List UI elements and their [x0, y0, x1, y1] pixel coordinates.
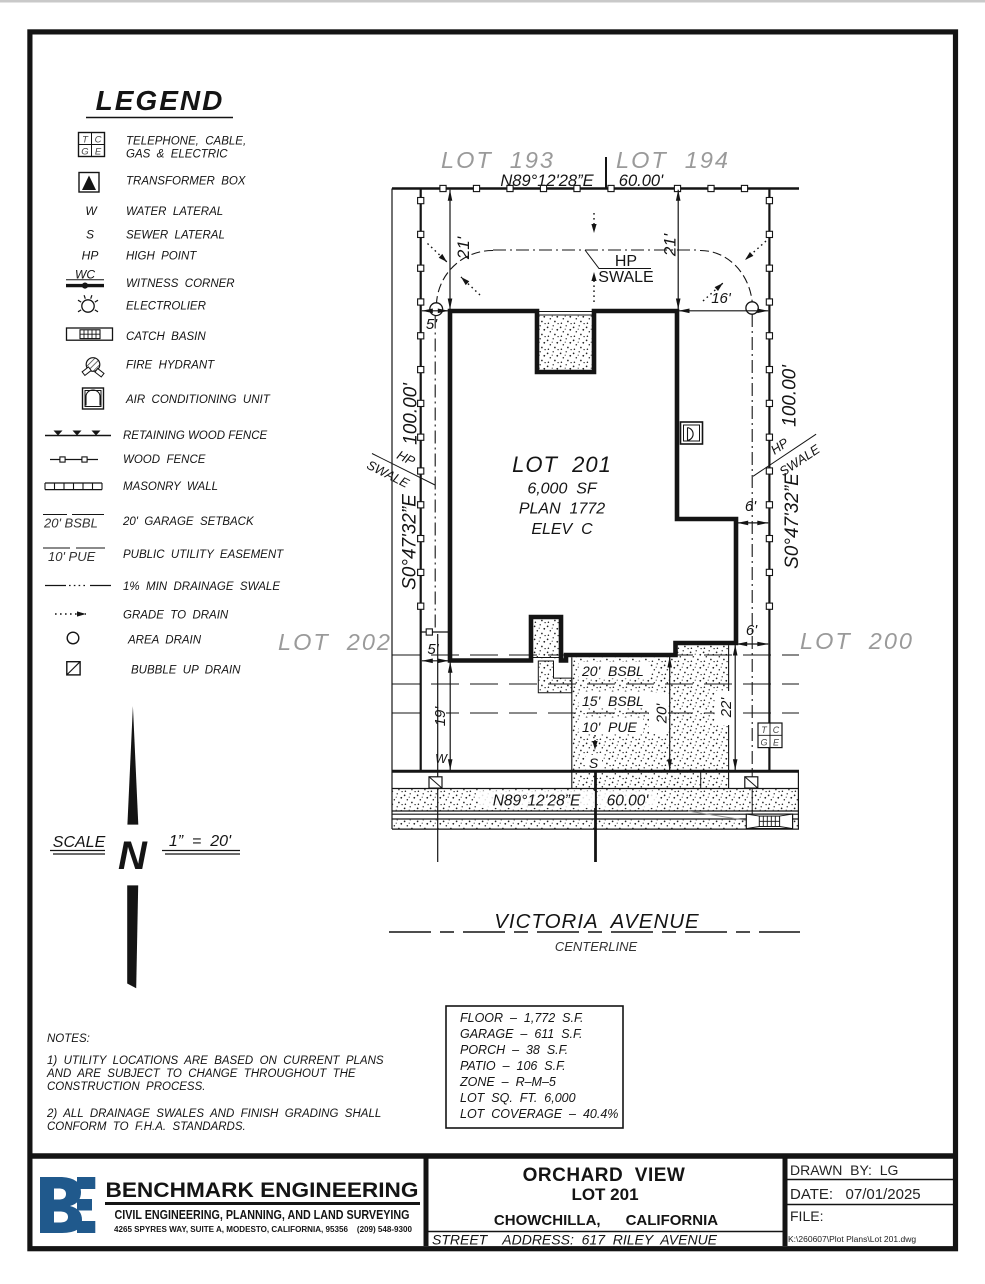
svg-text:LOT 200: LOT 200: [800, 628, 914, 654]
svg-text:CIVIL ENGINEERING, PLANNING, A: CIVIL ENGINEERING, PLANNING, AND LAND SU…: [115, 1208, 410, 1222]
svg-text:10' PUE: 10' PUE: [48, 549, 96, 564]
svg-text:CONSTRUCTION PROCESS.: CONSTRUCTION PROCESS.: [47, 1081, 205, 1093]
svg-text:SWALE: SWALE: [598, 269, 653, 286]
svg-text:6,000 SF: 6,000 SF: [527, 481, 598, 498]
svg-text:LOT SQ. FT. 6,000: LOT SQ. FT. 6,000: [460, 1091, 576, 1105]
svg-text:LOT 194: LOT 194: [616, 147, 730, 173]
svg-text:LOT 201: LOT 201: [571, 1185, 638, 1204]
svg-text:S: S: [589, 755, 599, 771]
svg-text:CONFORM TO F.H.A. STANDARDS: CONFORM TO F.H.A. STANDARDS.: [47, 1121, 246, 1133]
svg-text:HP: HP: [615, 253, 637, 270]
svg-text:2) ALL DRAINAGE SWALES AND: 2) ALL DRAINAGE SWALES AND FINISH GRADIN…: [46, 1108, 381, 1120]
svg-text:GAS & ELECTRIC: GAS & ELECTRIC: [126, 149, 228, 161]
svg-text:PORCH – 38 S.F.: PORCH – 38 S.F.: [460, 1043, 568, 1057]
svg-text:W: W: [435, 752, 448, 766]
svg-text:10' PUE: 10' PUE: [582, 719, 637, 735]
svg-text:WITNESS CORNER: WITNESS CORNER: [126, 278, 235, 290]
svg-text:100.00': 100.00': [401, 382, 422, 445]
svg-text:PUBLIC UTILITY EASEMENT: PUBLIC UTILITY EASEMENT: [123, 549, 284, 561]
svg-text:VICTORIA AVENUE: VICTORIA AVENUE: [494, 910, 700, 933]
svg-text:TRANSFORMER BOX: TRANSFORMER BOX: [126, 176, 247, 188]
svg-text:CATCH BASIN: CATCH BASIN: [126, 331, 206, 343]
svg-text:16': 16': [711, 290, 732, 307]
svg-text:HP: HP: [82, 249, 99, 263]
svg-text:NOTES:: NOTES:: [47, 1033, 90, 1045]
svg-text:GARAGE – 611 S.F.: GARAGE – 611 S.F.: [460, 1027, 583, 1041]
svg-text:4265 SPYRES WAY, SUITE A, MODE: 4265 SPYRES WAY, SUITE A, MODESTO, CALIF…: [114, 1224, 412, 1234]
svg-text:W: W: [85, 204, 98, 218]
svg-text:RETAINING WOOD FENCE: RETAINING WOOD FENCE: [123, 430, 268, 442]
svg-text:N: N: [118, 834, 148, 878]
svg-text:5': 5': [426, 316, 438, 333]
svg-text:ZONE – R–M–5: ZONE – R–M–5: [459, 1075, 556, 1089]
svg-text:G: G: [81, 147, 88, 158]
svg-text:LOT COVERAGE – 40.4%: LOT COVERAGE – 40.4%: [460, 1107, 618, 1121]
svg-text:STREET ADDRESS: 617 RILEY: STREET ADDRESS: 617 RILEY AVENUE: [432, 1232, 718, 1248]
svg-text:WOOD FENCE: WOOD FENCE: [123, 454, 206, 466]
svg-text:CENTERLINE: CENTERLINE: [555, 939, 638, 954]
svg-text:1) UTILITY LOCATIONS ARE B: 1) UTILITY LOCATIONS ARE BASED ON CURREN…: [47, 1055, 384, 1067]
svg-text:BENCHMARK ENGINEERING: BENCHMARK ENGINEERING: [106, 1178, 419, 1202]
svg-text:20' BSBL: 20' BSBL: [581, 663, 644, 679]
svg-text:S: S: [86, 228, 94, 242]
svg-text:G: G: [760, 738, 767, 748]
svg-text:1” = 20': 1” = 20': [169, 833, 232, 850]
svg-text:S0°47'32”E: S0°47'32”E: [782, 473, 803, 569]
svg-text:21': 21': [454, 236, 473, 260]
svg-text:BUBBLE UP DRAIN: BUBBLE UP DRAIN: [131, 665, 241, 677]
svg-text:20' BSBL: 20' BSBL: [43, 516, 98, 531]
svg-text:20': 20': [654, 703, 671, 725]
svg-text:21': 21': [661, 233, 680, 257]
svg-text:ORCHARD VIEW: ORCHARD VIEW: [523, 1165, 686, 1186]
svg-text:K:\260607\Plot Plans\Lot 201.d: K:\260607\Plot Plans\Lot 201.dwg: [788, 1234, 916, 1244]
svg-text:FILE:: FILE:: [790, 1208, 823, 1224]
svg-text:S0°47'32”E: S0°47'32”E: [400, 494, 421, 590]
svg-text:22': 22': [718, 697, 735, 719]
svg-text:SCALE: SCALE: [53, 834, 106, 851]
svg-text:DATE: 07/01/2025: DATE: 07/01/2025: [790, 1186, 921, 1203]
svg-text:60.00': 60.00': [607, 793, 650, 810]
svg-text:FLOOR – 1,772 S.F.: FLOOR – 1,772 S.F.: [460, 1011, 583, 1025]
svg-text:PATIO – 106 S.F.: PATIO – 106 S.F.: [460, 1059, 566, 1073]
svg-text:C: C: [95, 135, 102, 146]
svg-text:FIRE HYDRANT: FIRE HYDRANT: [126, 360, 215, 372]
svg-text:PLAN 1772: PLAN 1772: [519, 501, 605, 518]
svg-text:LOT 201: LOT 201: [512, 452, 612, 477]
svg-text:19': 19': [432, 706, 449, 727]
svg-text:SEWER LATERAL: SEWER LATERAL: [126, 230, 225, 242]
svg-text:E: E: [773, 738, 780, 748]
svg-text:ELEV C: ELEV C: [531, 521, 593, 538]
svg-text:MASONRY WALL: MASONRY WALL: [123, 481, 218, 493]
svg-text:C: C: [773, 725, 780, 735]
svg-text:HIGH POINT: HIGH POINT: [126, 251, 197, 263]
svg-text:15' BSBL: 15' BSBL: [582, 693, 644, 709]
svg-text:DRAWN BY: LG: DRAWN BY: LG: [790, 1162, 898, 1178]
svg-text:GRADE TO DRAIN: GRADE TO DRAIN: [123, 610, 229, 622]
svg-text:N89°12'28”E: N89°12'28”E: [493, 793, 581, 810]
svg-text:LOT 193: LOT 193: [441, 147, 555, 173]
svg-text:AND ARE SUBJECT TO CHANGE: AND ARE SUBJECT TO CHANGE THROUGHOUT THE: [46, 1068, 356, 1080]
svg-text:AREA DRAIN: AREA DRAIN: [127, 635, 202, 647]
svg-text:LEGEND: LEGEND: [96, 85, 225, 116]
svg-text:20' GARAGE SETBACK: 20' GARAGE SETBACK: [122, 516, 255, 528]
svg-text:WATER LATERAL: WATER LATERAL: [126, 206, 223, 218]
svg-text:TELEPHONE, CABLE,: TELEPHONE, CABLE,: [126, 136, 246, 148]
svg-text:CHOWCHILLA, CALIFORNIA: CHOWCHILLA, CALIFORNIA: [494, 1212, 718, 1229]
svg-text:LOT 202: LOT 202: [278, 629, 392, 655]
svg-text:100.00': 100.00': [780, 364, 801, 427]
svg-text:6': 6': [745, 498, 757, 515]
svg-text:E: E: [95, 147, 102, 158]
svg-text:ELECTROLIER: ELECTROLIER: [126, 301, 206, 313]
svg-text:1% MIN DRAINAGE SWALE: 1% MIN DRAINAGE SWALE: [123, 581, 280, 593]
svg-text:6': 6': [746, 622, 758, 639]
svg-text:AIR CONDITIONING UNIT: AIR CONDITIONING UNIT: [125, 394, 271, 406]
